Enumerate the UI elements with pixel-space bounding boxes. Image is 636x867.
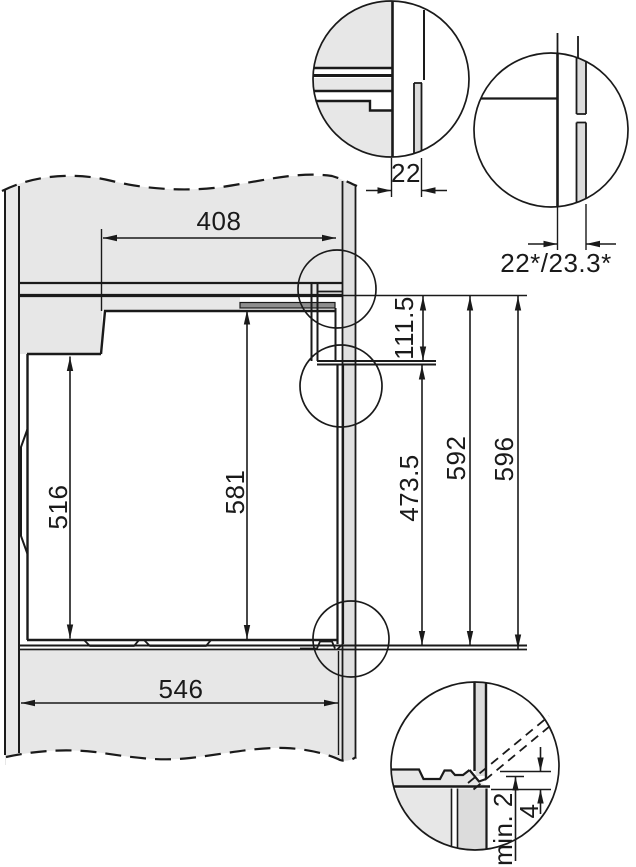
dim-592: 592: [441, 296, 473, 645]
dim-label-516: 516: [43, 485, 73, 530]
dim-label-22-23: 22*/23.3*: [500, 248, 611, 278]
control-panel-trim: [240, 303, 335, 309]
dim-label-473-5: 473.5: [394, 454, 424, 522]
dim-label-4: 4: [514, 804, 544, 819]
dim-label-546: 546: [159, 674, 204, 704]
dim-111-5: 111.5: [389, 296, 426, 361]
installation-drawing: 22 22*/23.3*: [0, 0, 636, 867]
dim-label-min-2: min. 2: [488, 792, 518, 866]
void-above-appliance-b: [19, 311, 102, 354]
detail-view-bottom-right: [391, 682, 559, 851]
void-above-appliance-a: [19, 296, 240, 311]
dim-label-596: 596: [489, 437, 519, 482]
side-wall-panel: [5, 180, 19, 765]
dim-516: 516: [43, 357, 73, 639]
dim-label-408: 408: [197, 206, 242, 236]
detail-marker-middle: [300, 345, 382, 427]
dim-front-panel-variant: 22*/23.3*: [500, 204, 616, 278]
installation-drawing-page: 22 22*/23.3*: [0, 0, 636, 867]
dim-front-panel-22: 22: [366, 158, 447, 197]
dim-label-22: 22: [391, 158, 421, 188]
top-cabinet-panel: [19, 176, 343, 283]
dim-473-5: 473.5: [394, 365, 425, 645]
dim-596: 596: [489, 296, 521, 649]
dim-label-111-5: 111.5: [389, 296, 419, 360]
detail-view-top-right: [474, 33, 628, 207]
dim-label-581: 581: [220, 470, 250, 515]
dim-581: 581: [220, 310, 250, 639]
dim-label-592: 592: [441, 436, 471, 481]
niche-top-shelf: [19, 283, 343, 296]
